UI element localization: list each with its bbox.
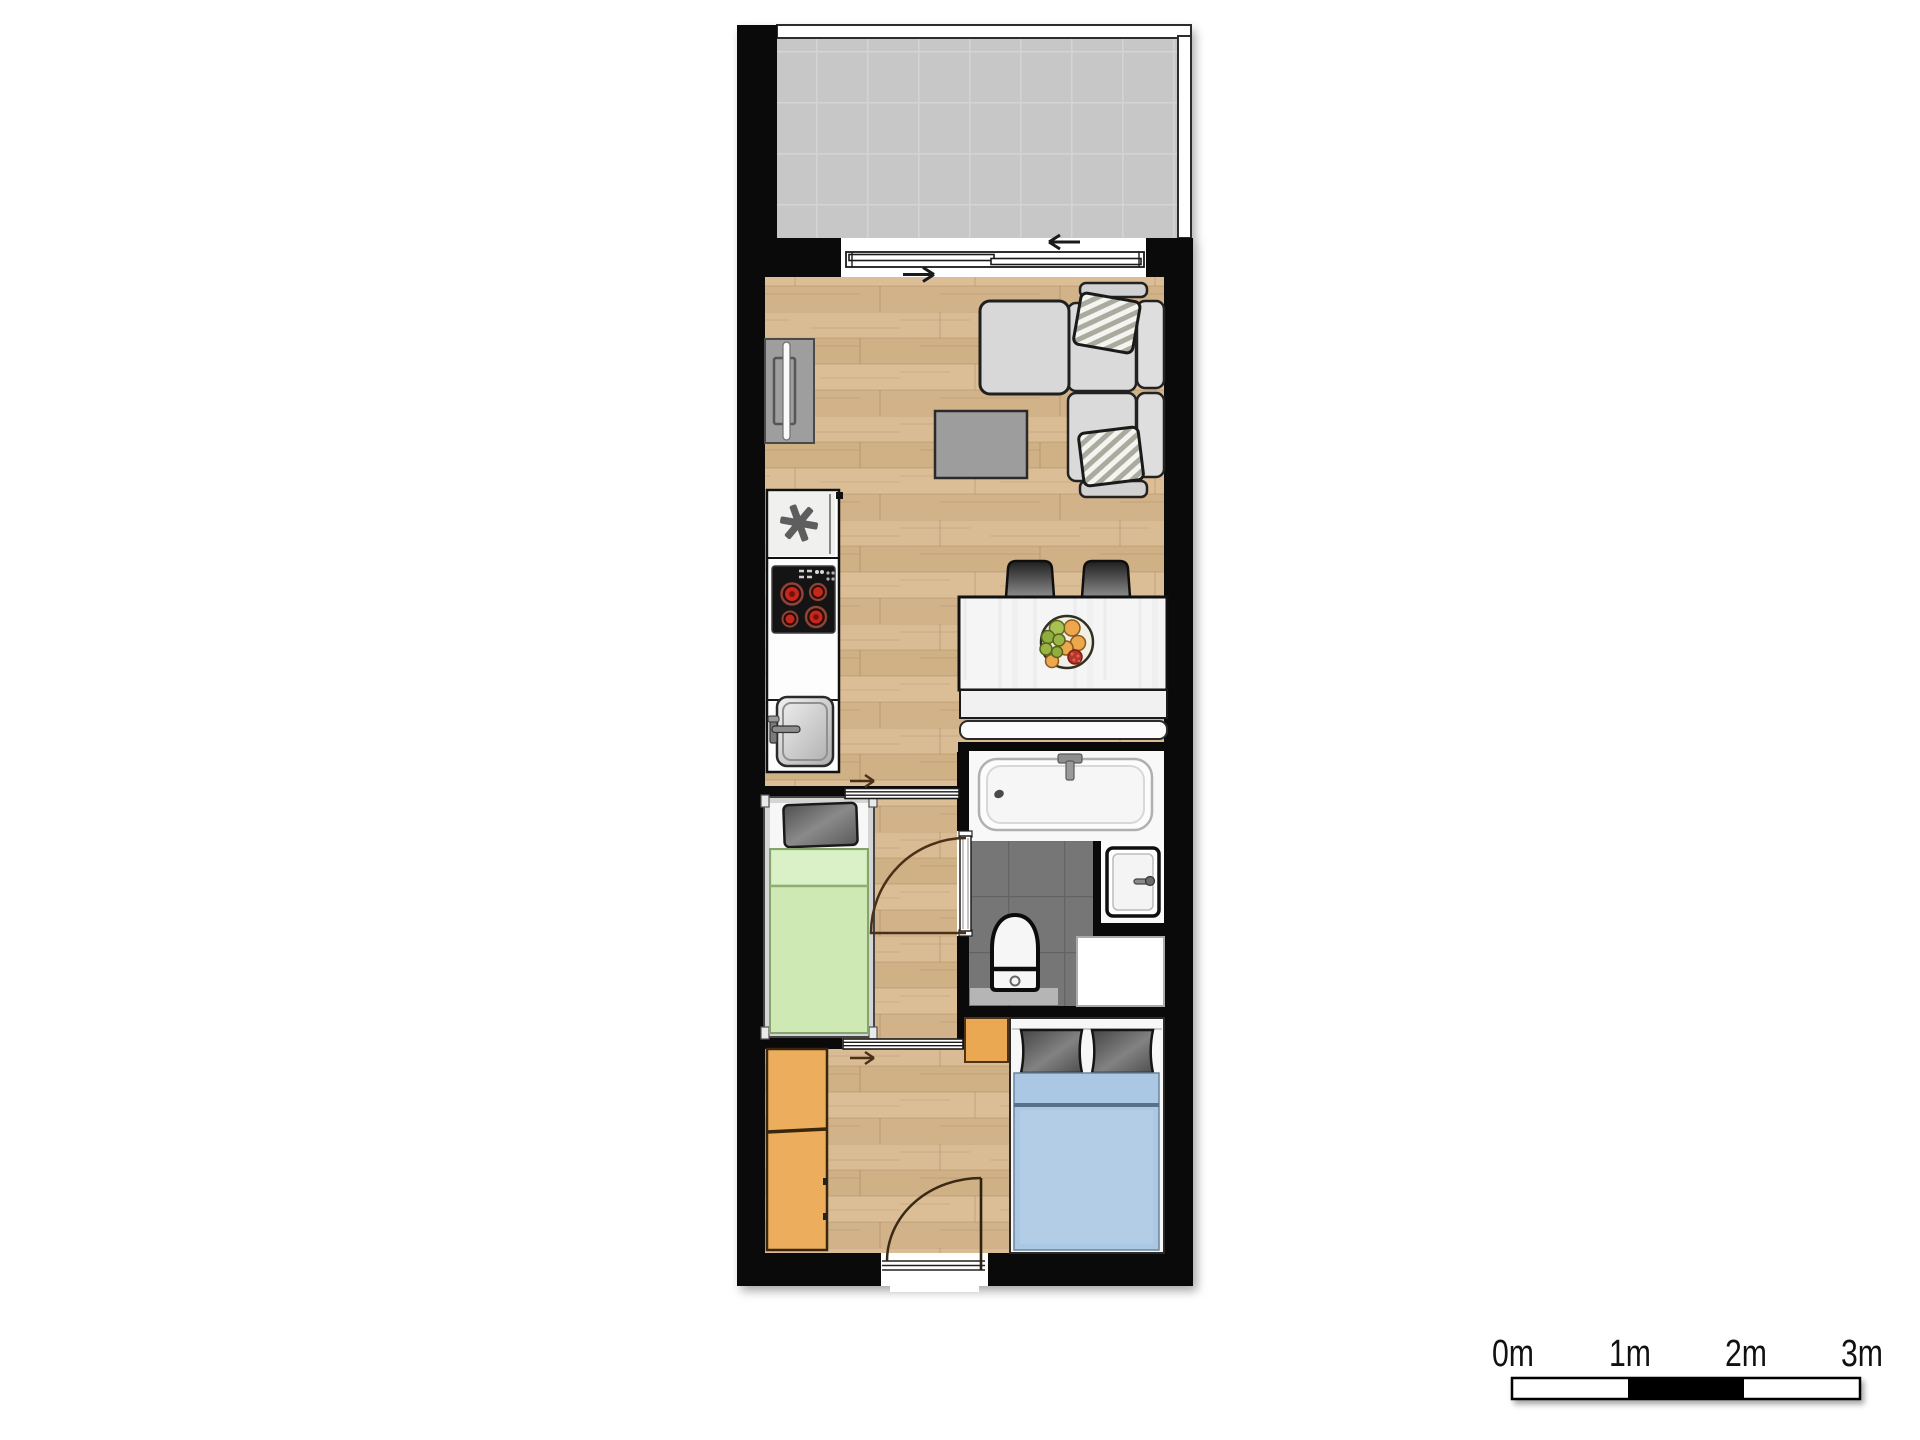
svg-text:3m: 3m <box>1841 1333 1883 1375</box>
svg-text:1m: 1m <box>1609 1333 1651 1375</box>
svg-text:2m: 2m <box>1725 1333 1767 1375</box>
svg-text:0m: 0m <box>1492 1333 1534 1375</box>
